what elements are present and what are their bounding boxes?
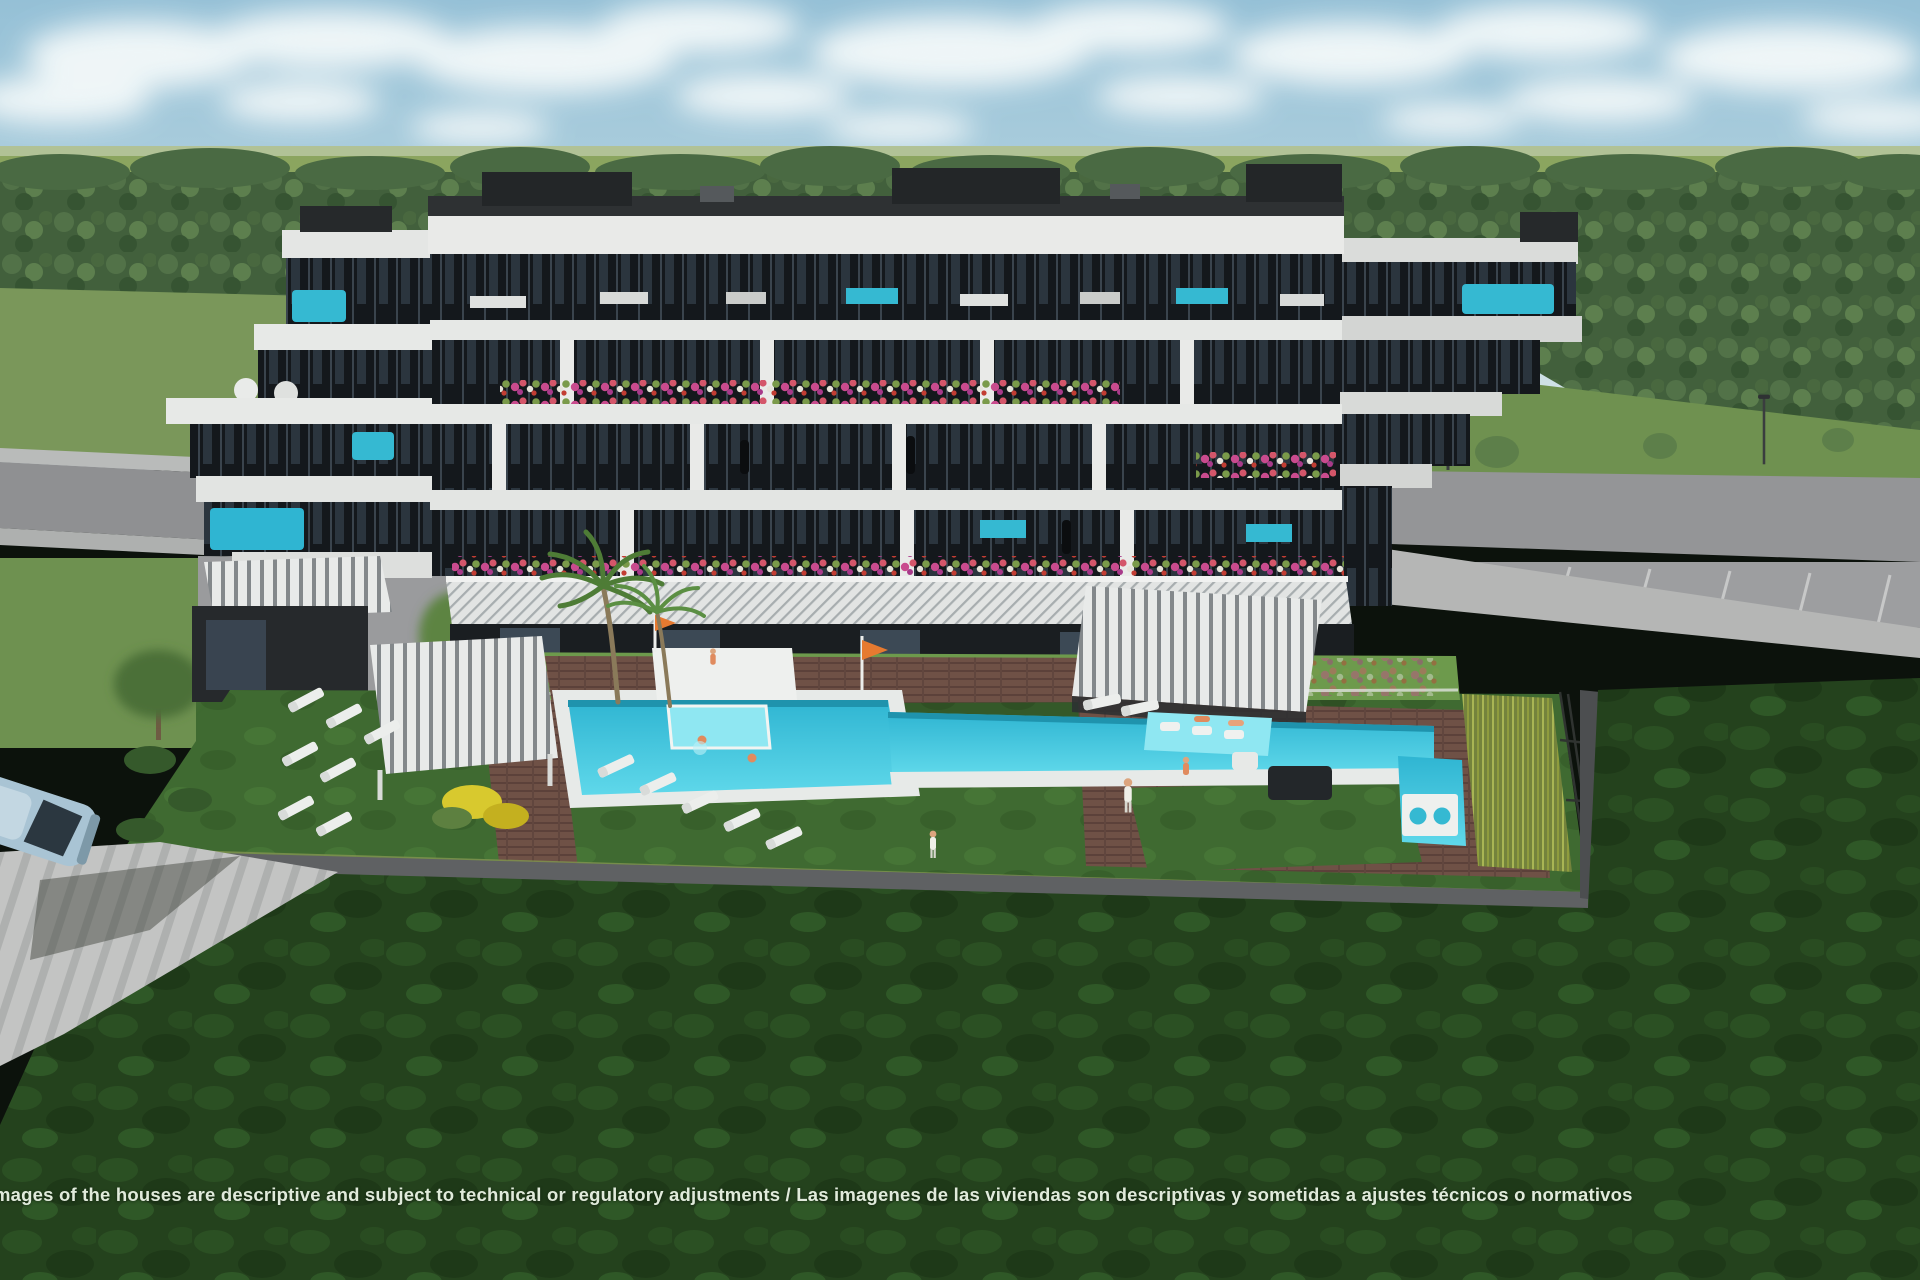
pergola-right bbox=[1072, 586, 1322, 730]
person-on-deck bbox=[710, 648, 716, 664]
terrace-plunge-pool bbox=[292, 290, 346, 322]
kids-pool bbox=[668, 706, 770, 748]
slab bbox=[430, 404, 1342, 424]
balcony-spa bbox=[980, 520, 1026, 538]
terrace-plunge-pool bbox=[210, 508, 304, 550]
sunbather bbox=[1194, 716, 1210, 722]
terrace-plunge-pool bbox=[352, 432, 394, 460]
roof-terrace-pool bbox=[1462, 284, 1554, 314]
spa-corner bbox=[1398, 756, 1466, 846]
slab bbox=[430, 320, 1342, 340]
balcony-spa bbox=[1246, 524, 1292, 542]
flower-boxes bbox=[500, 380, 1120, 404]
left-verge bbox=[0, 558, 218, 748]
slab bbox=[430, 490, 1342, 510]
hot-tub bbox=[1410, 808, 1427, 825]
hot-tub bbox=[1434, 808, 1451, 825]
architectural-render: mages of the houses are descriptive and … bbox=[0, 0, 1920, 1280]
top-fascia bbox=[428, 216, 1344, 254]
person-at-pool bbox=[1183, 757, 1189, 775]
legal-disclaimer: mages of the houses are descriptive and … bbox=[0, 1184, 1914, 1206]
render-canvas bbox=[0, 0, 1920, 1280]
outdoor-sofa bbox=[1268, 766, 1332, 800]
sunbather bbox=[1228, 720, 1244, 726]
side-table bbox=[1232, 752, 1258, 770]
swimmer bbox=[748, 754, 757, 763]
flower-boxes bbox=[1196, 452, 1336, 478]
pool-platform bbox=[652, 648, 797, 700]
